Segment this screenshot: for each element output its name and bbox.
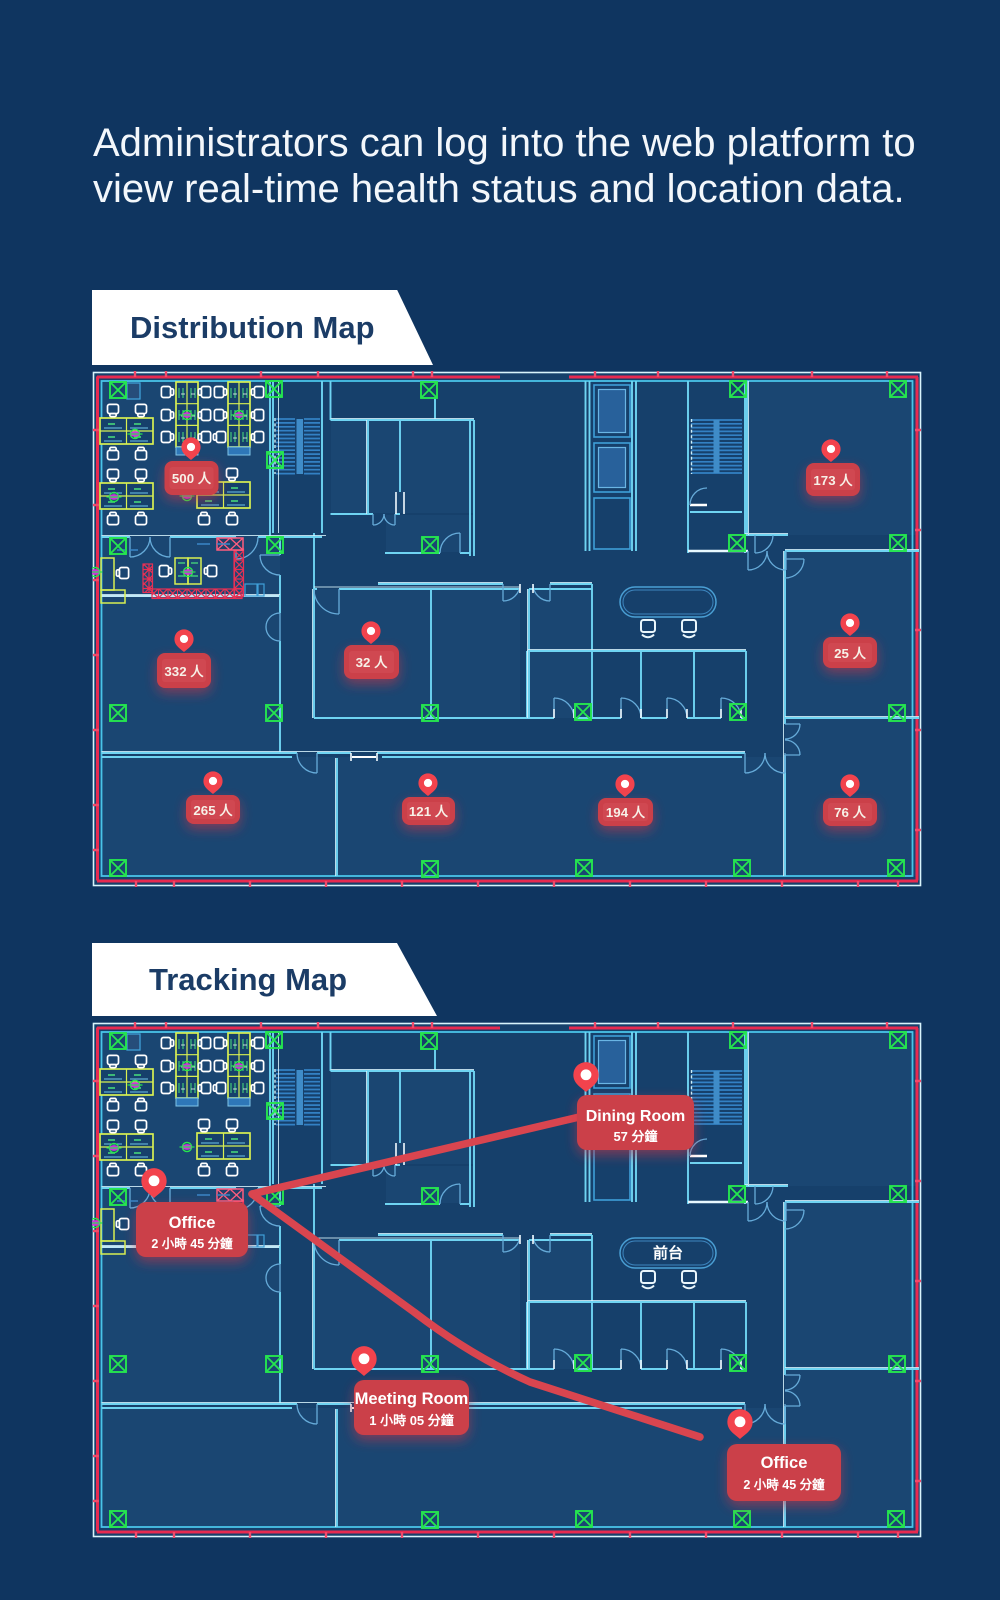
svg-text:2 小時 45 分鐘: 2 小時 45 分鐘 <box>151 1236 233 1251</box>
svg-text:Office: Office <box>169 1214 216 1232</box>
svg-text:32 人: 32 人 <box>356 655 388 670</box>
svg-text:76 人: 76 人 <box>834 805 866 820</box>
svg-text:25 人: 25 人 <box>834 646 866 661</box>
svg-text:前台: 前台 <box>653 1244 683 1262</box>
svg-text:332 人: 332 人 <box>164 664 204 679</box>
svg-text:173 人: 173 人 <box>813 473 853 488</box>
svg-text:Meeting Room: Meeting Room <box>355 1390 469 1408</box>
svg-text:194 人: 194 人 <box>606 805 646 820</box>
svg-text:121 人: 121 人 <box>409 804 449 819</box>
svg-text:265 人: 265 人 <box>193 803 233 818</box>
svg-text:2 小時 45 分鐘: 2 小時 45 分鐘 <box>743 1477 825 1492</box>
svg-text:Dining Room: Dining Room <box>586 1108 686 1125</box>
svg-text:1 小時 05 分鐘: 1 小時 05 分鐘 <box>369 1413 454 1428</box>
svg-text:57 分鐘: 57 分鐘 <box>613 1129 657 1144</box>
svg-text:500 人: 500 人 <box>172 471 212 486</box>
svg-text:Office: Office <box>761 1454 808 1472</box>
